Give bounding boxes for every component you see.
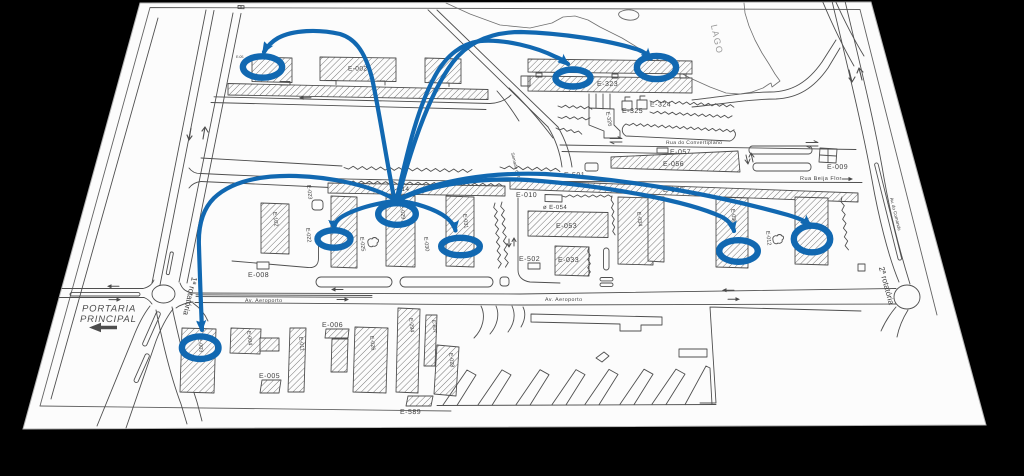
svg-text:E-056: E-056 <box>663 161 684 168</box>
svg-text:Av. Aeroporto: Av. Aeroporto <box>545 297 582 303</box>
svg-text:E-05: E-05 <box>236 55 243 59</box>
svg-text:E-008: E-008 <box>248 272 269 279</box>
svg-text:E-053: E-053 <box>556 223 577 230</box>
svg-text:E-323: E-323 <box>597 81 618 88</box>
svg-text:E-006: E-006 <box>322 322 343 329</box>
svg-text:E-002: E-002 <box>348 66 367 73</box>
svg-text:Rua Beija Flor: Rua Beija Flor <box>800 176 842 182</box>
svg-text:E-005: E-005 <box>259 373 280 380</box>
svg-text:E-033: E-033 <box>558 257 579 264</box>
svg-text:PORTARIA: PORTARIA <box>82 304 136 315</box>
svg-text:E-325: E-325 <box>622 108 643 115</box>
svg-text:E-010: E-010 <box>516 192 537 199</box>
svg-text:E-502: E-502 <box>519 256 540 263</box>
svg-text:PRINCIPAL: PRINCIPAL <box>80 314 137 325</box>
svg-text:Av. Aeroporto: Av. Aeroporto <box>245 298 282 304</box>
svg-text:Rua do Convertiplano: Rua do Convertiplano <box>666 140 722 146</box>
svg-text:E-589: E-589 <box>400 409 421 416</box>
svg-text:E-009: E-009 <box>827 164 848 171</box>
svg-text:ø E-054: ø E-054 <box>543 204 567 211</box>
